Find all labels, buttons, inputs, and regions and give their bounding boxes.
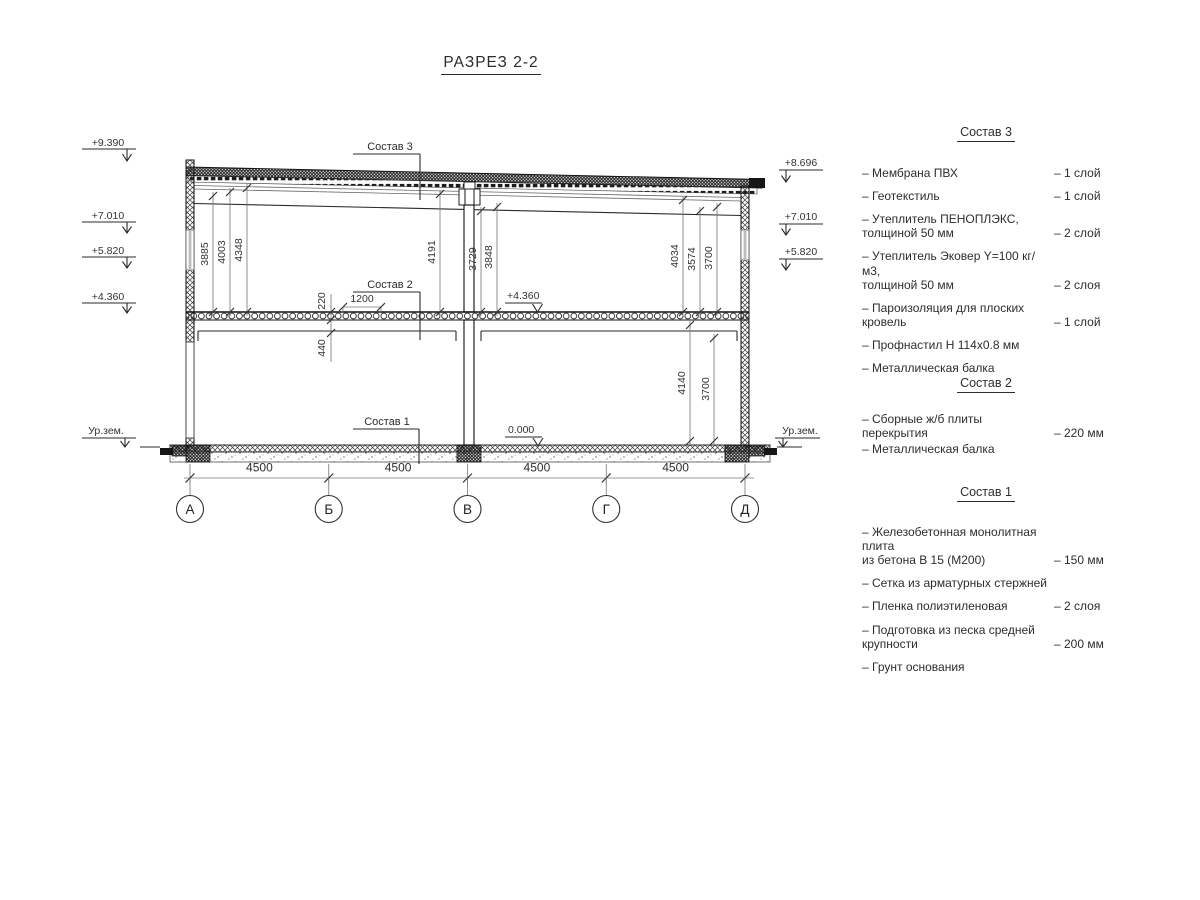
legend-item-value: – 150 мм [1054,553,1110,567]
dim-label: 4191 [426,240,438,264]
dim-label: 1200 [350,293,374,305]
dim-label: 3885 [199,242,211,266]
legend-row: – Пленка полиэтиленовая – 2 слоя [862,599,1110,613]
dim-label: 3700 [700,377,712,401]
dim-label: 3700 [703,246,715,270]
elevation-mark: +4.360 [82,291,136,313]
elevation-mark: +5.820 [779,246,823,270]
legend-row: – Утеплитель ПЕНОПЛЭКС, толщиной 50 мм –… [862,212,1110,240]
level-mark-mid-floor: +4.360 [505,290,543,312]
legend-item-name: – Пленка полиэтиленовая [862,599,1050,613]
elevation-value: +7.010 [92,210,125,222]
axis-label: Г [603,502,611,517]
foundation-block-right [725,445,749,462]
foundation-block-left [186,445,210,462]
legend-item-name: – Утеплитель ПЕНОПЛЭКС, толщиной 50 мм [862,212,1050,240]
legend-row: – Железобетонная монолитная плита из бет… [862,525,1110,567]
right-step [749,446,765,456]
roof-edge-cap [749,178,765,188]
legend-title-text: Состав 2 [957,376,1015,393]
legend-item-name: – Мембрана ПВХ [862,166,1050,180]
legend-title-text: Состав 3 [957,125,1015,142]
drawing-sheet: РАЗРЕЗ 2-2 [0,0,1200,900]
legend-item-value: – 1 слой [1054,166,1110,180]
dim-label: 4034 [669,244,681,268]
column-bracket [459,189,480,205]
axis-label: Д [740,502,749,517]
legend-item-value: – 2 слой [1054,226,1110,240]
dim-label: 3574 [686,247,698,271]
leader-label: Состав 3 [367,141,413,153]
legend-item-value: – 2 слоя [1054,599,1110,613]
elevation-value: +8.696 [785,157,818,169]
axis-bubbles: А Б В Г Д [177,478,759,523]
legend-item-name: – Пароизоляция для плоских кровель [862,301,1050,329]
legend-title-text: Состав 1 [957,485,1015,502]
legend-row: – Геотекстиль – 1 слой [862,189,1110,203]
legend-item-name: – Утеплитель Эковер Y=100 кг/м3, толщино… [862,249,1050,291]
level-mark-label: +4.360 [507,290,540,302]
span-dim-label: 4500 [246,461,273,475]
span-dimensions: 4500 4500 4500 4500 [184,461,754,484]
ground-level-mark: Ур.зем. [82,425,136,447]
elevation-value: Ур.зем. [88,425,124,437]
legend-title: Состав 1 [862,485,1110,500]
column-bolt-detail [464,182,475,189]
axis-label: В [463,502,472,517]
legend-item-name: – Сборные ж/б плиты перекрытия [862,412,1050,440]
legend-row: – Профнастил Н 114х0.8 мм [862,338,1110,352]
legend-title: Состав 3 [862,125,1110,140]
right-step-cap [764,448,777,455]
elevation-value: +4.360 [92,291,125,303]
lower-dimensions: 4140 3700 [676,321,718,445]
legend-section-1: Состав 1 – Железобетонная монолитная пли… [862,485,1110,683]
left-wall [186,160,194,447]
legend-item-name: – Металлическая балка [862,442,1050,456]
legend-item-name: – Геотекстиль [862,189,1050,203]
elevation-value: Ур.зем. [782,425,818,437]
elevation-value: +5.820 [785,246,818,258]
legend-row: – Утеплитель Эковер Y=100 кг/м3, толщино… [862,249,1110,291]
elevation-mark: +9.390 [82,137,136,161]
level-mark-label: 0.000 [508,424,534,436]
mid-floor-slab [186,312,749,320]
foundation-block-center [457,445,481,462]
right-wall-window-glass [744,230,747,260]
span-dim-label: 4500 [385,461,412,475]
legend-item-value: – 200 мм [1054,637,1110,651]
elevation-marks-left: +9.390 +7.010 +5.820 +4.360 [82,137,136,447]
legend-row: – Металлическая балка [862,361,1110,375]
legend-row: – Подготовка из песка средней крупности … [862,623,1110,651]
axis-label: А [185,502,194,517]
legend-item-name: – Подготовка из песка средней крупности [862,623,1050,651]
left-wall-glazing-lower [186,342,194,438]
elevation-value: +7.010 [785,211,818,223]
left-wall-window-glass [189,230,192,270]
leader-label: Состав 2 [367,279,413,291]
legend-title: Состав 2 [862,376,1110,391]
legend-item-name: – Металлическая балка [862,361,1050,375]
legend-row: – Сетка из арматурных стержней [862,576,1110,590]
elevation-mark: +5.820 [82,245,136,268]
ground-slab [140,445,802,462]
dim-label: 4140 [676,371,688,395]
elevation-mark: +7.010 [779,211,823,235]
level-mark-zero: 0.000 [505,424,543,446]
span-dim-label: 4500 [662,461,689,475]
dim-label: 3729 [467,247,479,271]
elevation-mark: +8.696 [779,157,823,182]
legend-row: – Металлическая балка [862,442,1110,456]
elevation-marks-right: +8.696 +7.010 +5.820 Ур.зем. [775,157,823,447]
leader-label: Состав 1 [364,416,410,428]
elevation-value: +9.390 [92,137,125,149]
dim-label: 440 [316,339,328,357]
legend-item-value: – 2 слоя [1054,278,1110,292]
legend-item-name: – Железобетонная монолитная плита из бет… [862,525,1050,567]
elevation-mark: +7.010 [82,210,136,233]
legend-section-2: Состав 2 – Сборные ж/б плиты перекрытия … [862,376,1110,465]
span-dim-label: 4500 [524,461,551,475]
legend-item-value: – 1 слой [1054,315,1110,329]
dim-label: 3848 [483,245,495,269]
legend-row: – Грунт основания [862,660,1110,674]
legend-row: – Сборные ж/б плиты перекрытия – 220 мм [862,412,1110,440]
legend-item-name: – Профнастил Н 114х0.8 мм [862,338,1050,352]
left-step-cap [160,448,173,455]
dim-label: 4003 [216,240,228,264]
ground-level-mark: Ур.зем. [775,425,820,447]
slab-dimensions: 220 440 1200 [316,292,385,362]
legend-section-3: Состав 3 – Мембрана ПВХ – 1 слой – Геоте… [862,125,1110,384]
axis-label: Б [324,502,333,517]
elevation-value: +5.820 [92,245,125,257]
dim-label: 4348 [233,238,245,262]
legend-item-name: – Грунт основания [862,660,1050,674]
dim-label: 220 [316,292,328,310]
legend-row: – Пароизоляция для плоских кровель – 1 с… [862,301,1110,329]
legend-item-name: – Сетка из арматурных стержней [862,576,1050,590]
legend-item-value: – 220 мм [1054,426,1110,440]
legend-item-value: – 1 слой [1054,189,1110,203]
left-step [172,446,188,456]
legend-row: – Мембрана ПВХ – 1 слой [862,166,1110,180]
